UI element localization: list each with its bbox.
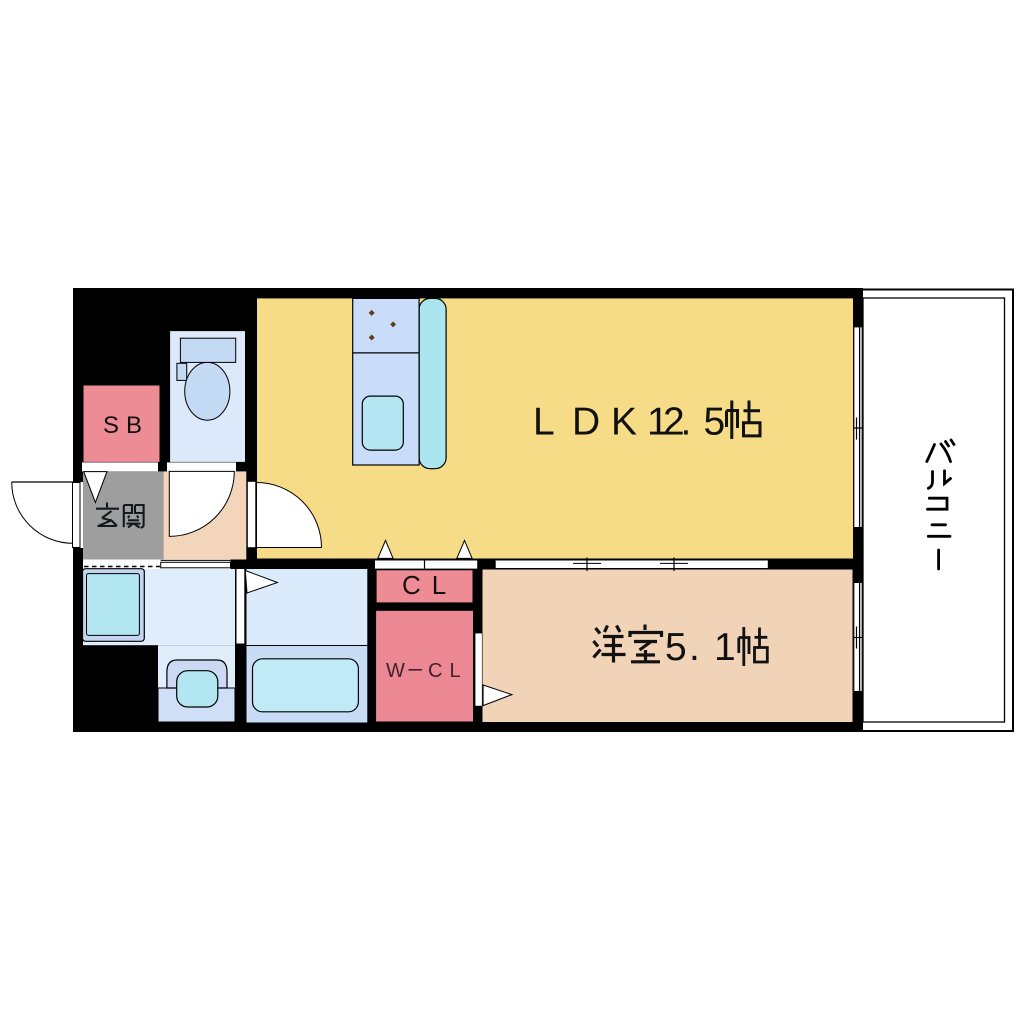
svg-text:1: 1: [714, 626, 736, 669]
svg-text:.: .: [681, 401, 692, 444]
svg-text:5: 5: [665, 626, 687, 669]
svg-text:CL: CL: [402, 570, 457, 600]
svg-text:5: 5: [704, 401, 726, 444]
svg-text:D: D: [572, 401, 600, 444]
svg-text:L: L: [450, 660, 461, 682]
svg-text:L: L: [533, 401, 555, 444]
svg-text:SB: SB: [103, 412, 149, 439]
svg-text:W: W: [386, 660, 405, 682]
svg-text:K: K: [611, 401, 637, 444]
svg-text:.: .: [689, 626, 700, 669]
svg-text:C: C: [428, 660, 442, 682]
